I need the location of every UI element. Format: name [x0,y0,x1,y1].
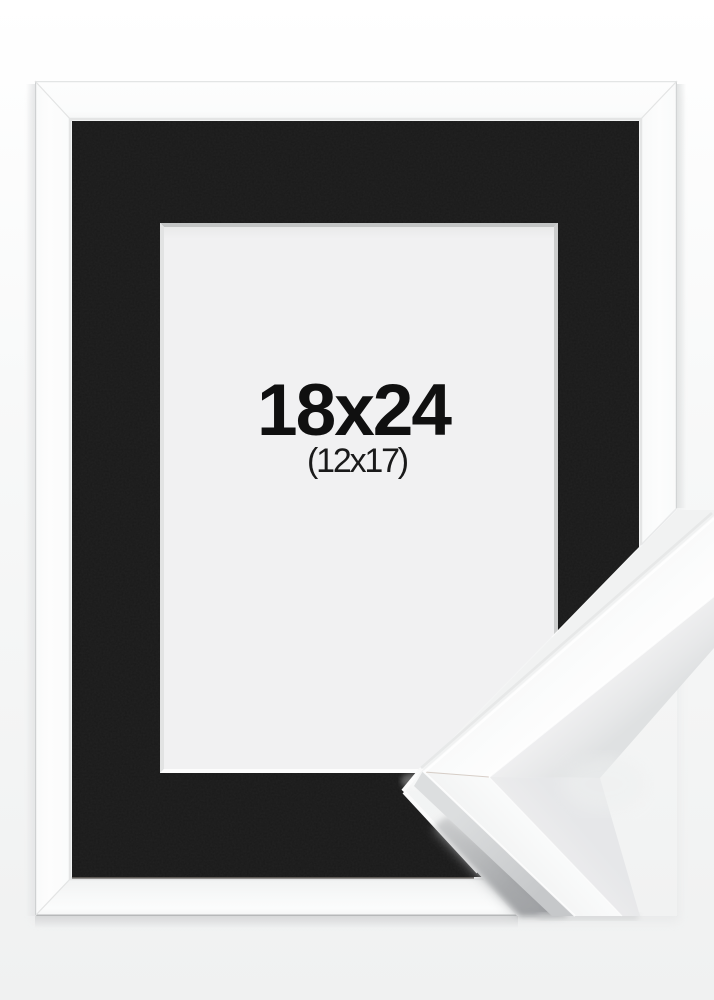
svg-text:(12x17): (12x17) [307,442,408,480]
svg-text:18x24: 18x24 [257,370,452,451]
